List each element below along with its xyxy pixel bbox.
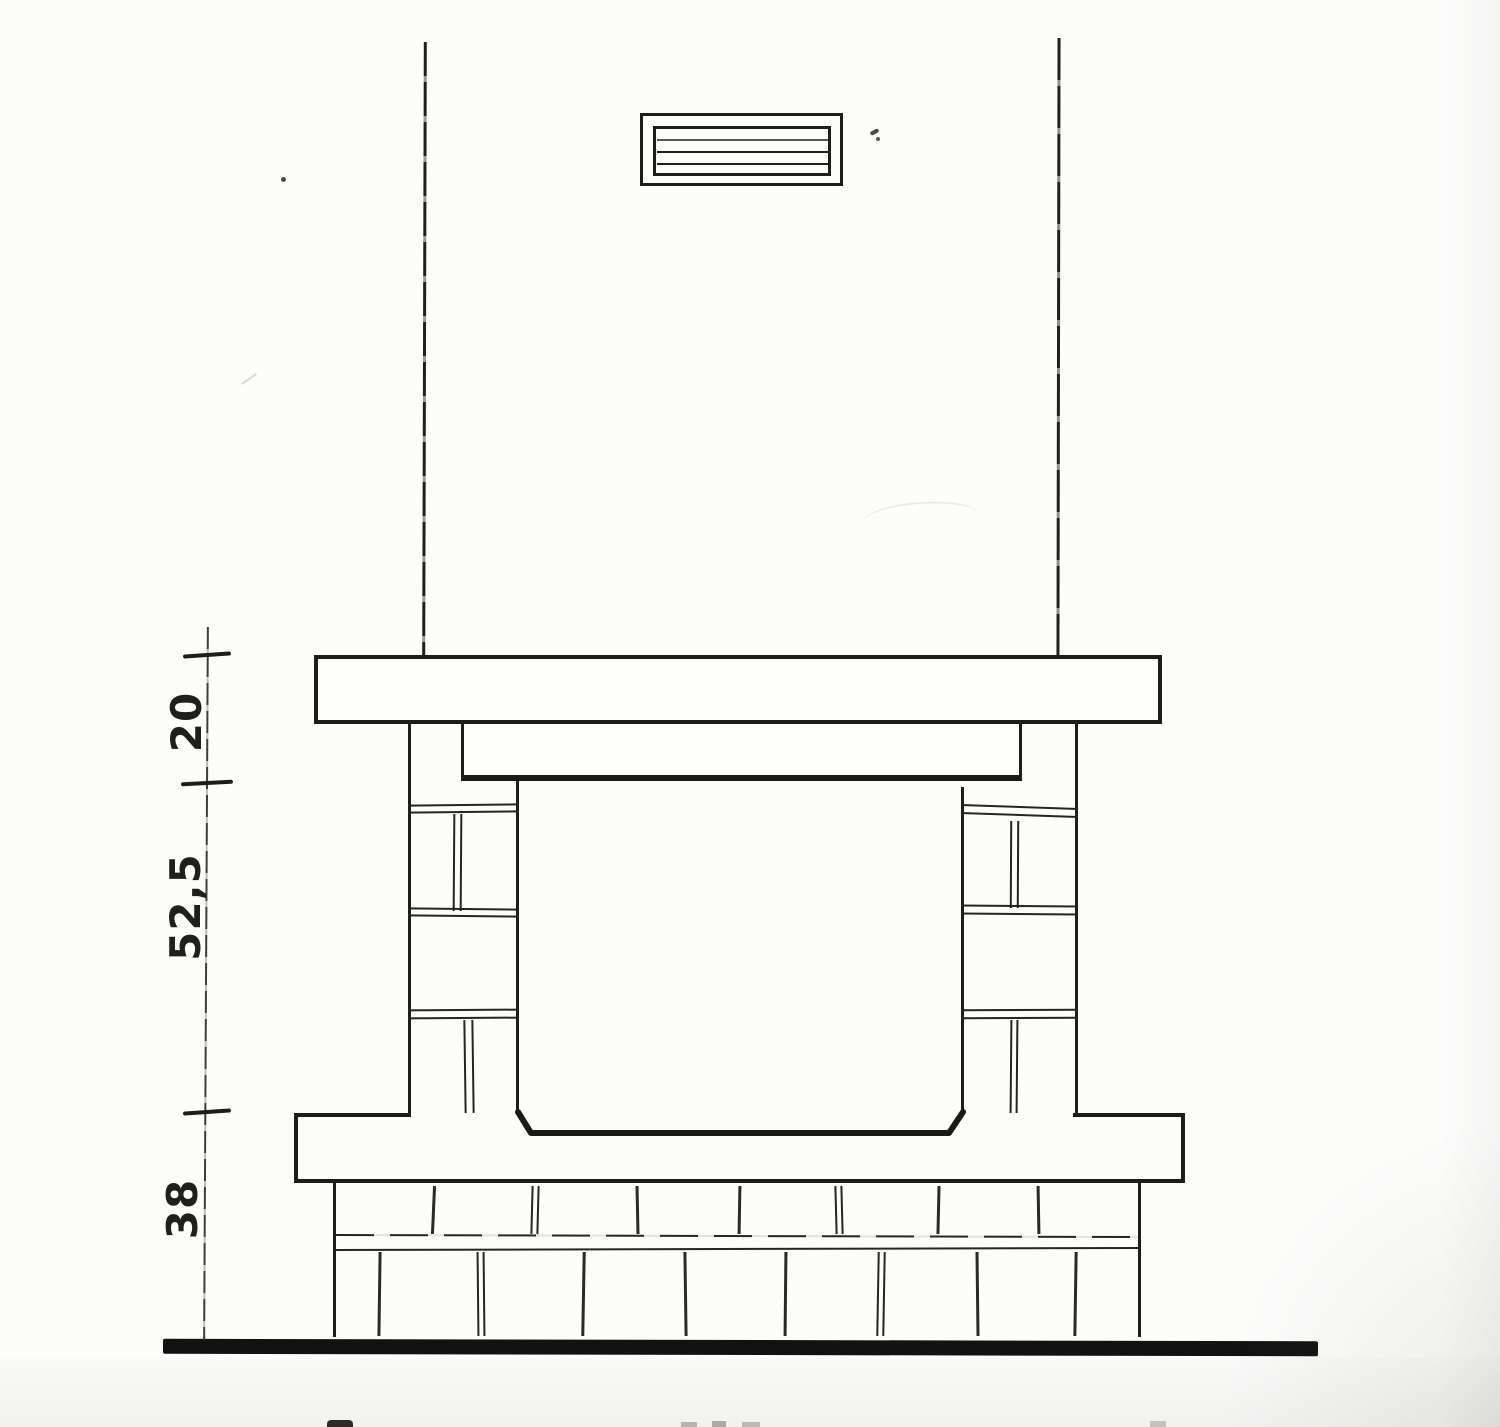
- clipped-mark: [712, 1421, 726, 1427]
- pillar-left-inner-edge: [516, 781, 519, 1113]
- mantel-shelf: [314, 655, 1162, 724]
- brick-joint: [453, 814, 463, 911]
- brick-joint: [961, 1009, 1078, 1020]
- brick-joint: [961, 904, 1078, 915]
- brick-joint: [1010, 1020, 1019, 1113]
- plinth-brick-joint: [477, 1252, 486, 1336]
- flue-line-left: [422, 42, 427, 656]
- scan-shading-bottom: [0, 1358, 1500, 1427]
- dimension-label-top: 20: [164, 652, 208, 792]
- base-plinth: [333, 1183, 1141, 1337]
- plinth-brick-joint: [530, 1186, 539, 1234]
- dimension-label-middle: 52,5: [163, 837, 207, 977]
- pillar-right-outer-edge: [1075, 724, 1078, 1113]
- clipped-mark: [327, 1420, 353, 1427]
- clipped-mark: [681, 1422, 697, 1427]
- dimension-label-bottom: 38: [160, 1139, 204, 1279]
- hearth-top-edge-right: [1073, 1113, 1185, 1117]
- plinth-brick-joint: [876, 1252, 885, 1336]
- brick-joint: [408, 803, 519, 813]
- clipped-mark: [742, 1422, 760, 1427]
- plinth-brick-joint: [834, 1186, 843, 1234]
- technical-drawing-sheet: 20 52,5 38: [0, 0, 1500, 1427]
- pillar-right-inner-edge: [961, 787, 964, 1113]
- brick-joint: [463, 1020, 474, 1113]
- grille-louver-line: [657, 163, 828, 165]
- clipped-mark: [1150, 1421, 1166, 1427]
- scan-shading-corner: [1180, 1080, 1500, 1427]
- scan-dot: [281, 177, 286, 182]
- brick-joint: [408, 907, 519, 917]
- grille-louver-line: [657, 151, 828, 153]
- brick-joint: [408, 1009, 519, 1020]
- hearth-slab: [294, 1113, 1185, 1183]
- brick-joint: [961, 804, 1078, 818]
- hearth-top-edge-left: [294, 1113, 411, 1117]
- flue-line-right: [1056, 38, 1060, 656]
- scan-arc: [861, 498, 981, 540]
- scan-scratch: [241, 373, 257, 385]
- scan-speck: [870, 128, 880, 136]
- dimension-tick: [183, 1108, 231, 1115]
- lintel-band: [461, 724, 1022, 781]
- ground-line: [163, 1339, 1318, 1356]
- pillar-left-outer-edge: [408, 724, 411, 1113]
- scan-shading-right-edge: [1440, 0, 1500, 1427]
- brick-joint: [1010, 821, 1019, 908]
- scan-speck: [876, 137, 880, 141]
- grille-louver-line: [657, 139, 828, 141]
